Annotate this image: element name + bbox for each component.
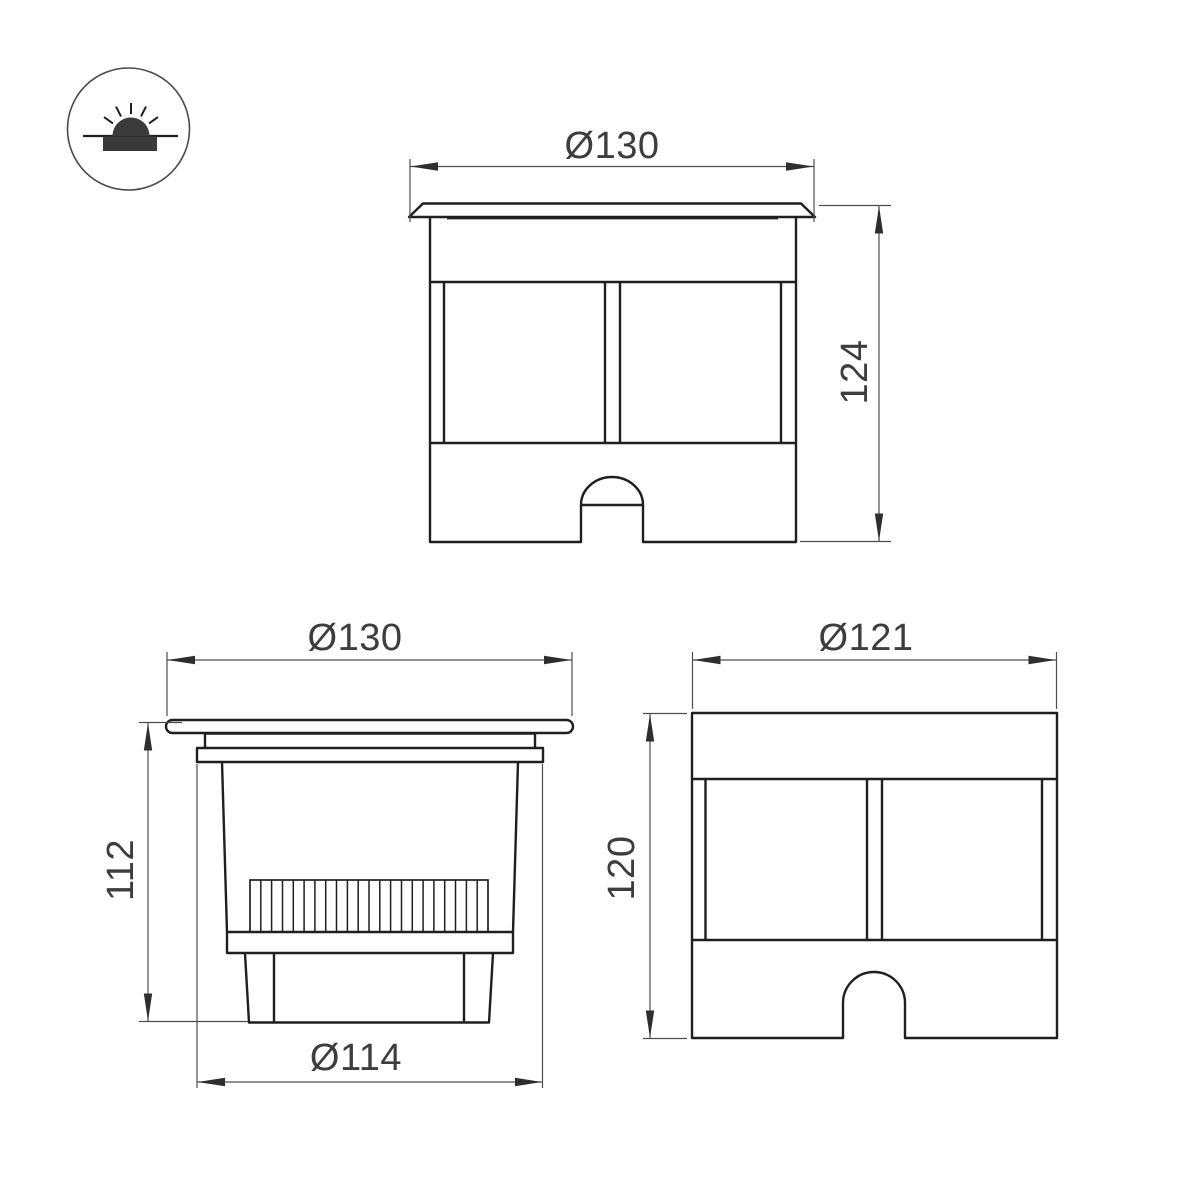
arrowhead-right [1029,656,1057,664]
side-bottom-width-dim-label: Ø114 [310,1037,402,1079]
arrowhead-bottom [144,994,152,1022]
front-height-dimension: 124 [800,206,891,542]
arrowhead-top [646,714,654,742]
extension-lines [167,652,572,716]
front-view: Ø130 124 [409,125,891,542]
front-body-bands [430,282,796,443]
icon-lens-dome [113,118,150,136]
side-width-dimension: Ø130 [167,617,572,716]
sleeve-height-dim-label: 120 [601,836,643,901]
arrowhead-right [786,162,814,170]
side-flange-plate [166,720,573,733]
technical-drawing-page: Ø130 124 Ø130 [0,0,1200,1200]
front-width-dimension: Ø130 [410,125,814,222]
arrowhead-bottom [875,514,883,542]
sleeve-width-dimension: Ø121 [693,617,1057,709]
side-section-view: Ø130 112 Ø114 [100,617,573,1088]
front-flange [409,204,815,218]
front-height-dim-label: 124 [834,340,876,405]
sleeve-view: Ø121 120 [601,617,1057,1039]
front-body-outline [430,217,796,542]
front-window-frames [444,282,781,443]
side-heatsink-fins [261,880,477,932]
icon-recessed-body [103,137,157,152]
sleeve-window-frames [706,779,1043,940]
inground-light-icon [68,68,190,190]
arrowhead-left [198,1078,226,1086]
extension-lines [139,723,248,1022]
front-cable-notch-arch [581,477,643,505]
side-bottom-housing [245,954,493,1023]
side-base-plate [227,932,513,953]
sleeve-outline [692,713,1057,1038]
side-collar [205,734,535,749]
side-ring-band [197,748,543,762]
sleeve-width-dim-label: Ø121 [819,617,914,659]
arrowhead-right [515,1078,542,1086]
sleeve-height-dimension: 120 [601,714,687,1039]
arrowhead-left [411,162,439,170]
arrowhead-left [693,656,721,664]
arrowhead-top [144,723,152,751]
extension-lines [410,159,814,222]
dimension-drawing: Ø130 124 Ø130 [0,0,1200,1200]
front-width-dim-label: Ø130 [565,125,660,167]
arrowhead-right [544,656,572,664]
side-body-walls [222,762,518,932]
arrowhead-top [875,206,883,234]
side-width-dim-label: Ø130 [308,617,403,659]
side-height-dim-label: 112 [100,839,142,901]
arrowhead-bottom [646,1011,654,1039]
sleeve-body-bands [692,779,1057,940]
arrowhead-left [168,656,196,664]
